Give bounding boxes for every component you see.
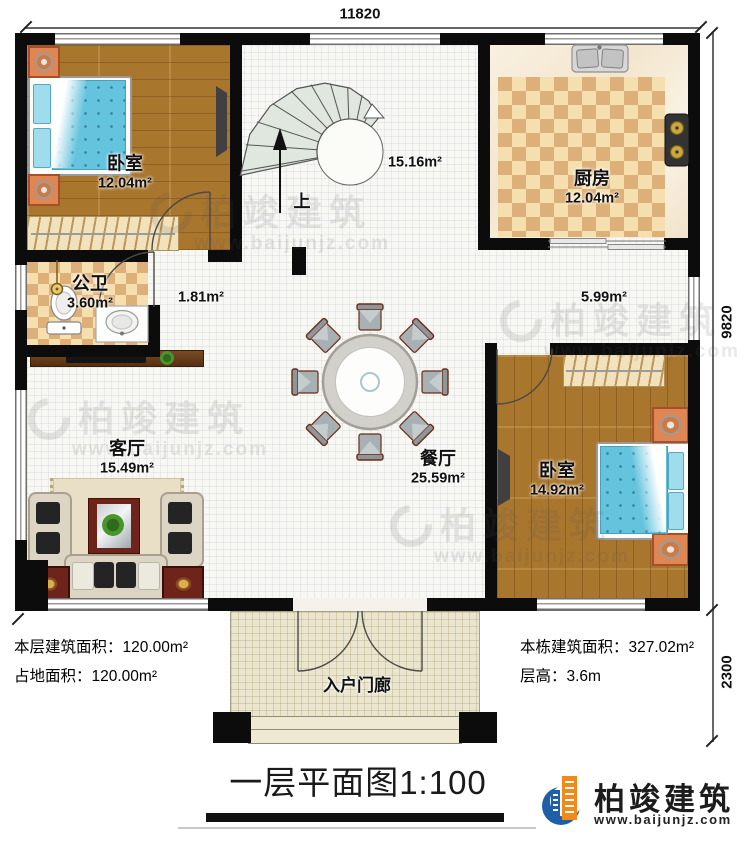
window — [48, 598, 208, 611]
room-label-bathroom: 公卫 3.60m² — [67, 274, 113, 313]
dimension-height-porch: 2300 — [719, 651, 736, 692]
porch-step — [248, 729, 462, 744]
plant-icon — [160, 351, 174, 365]
pillow — [668, 492, 684, 530]
title-underline-thin — [178, 827, 536, 829]
watermark: 柏竣建筑 www.baijunjz.com — [390, 505, 630, 567]
room-label-bedroom2: 卧室 14.92m² — [530, 461, 584, 500]
sofa-cushion — [36, 532, 60, 554]
watermark-logo-icon — [491, 291, 550, 350]
area-label-stair-hall: 15.16m² — [388, 154, 442, 171]
floor-plan-canvas: 卧室 12.04m² 15.16m² 上 厨房 12.04m² 公卫 3.60m… — [0, 0, 750, 842]
watermark-logo-icon — [381, 496, 440, 555]
sofa-cushion — [72, 562, 94, 590]
kitchen-tile — [498, 77, 665, 237]
pillow — [33, 128, 51, 168]
window — [15, 390, 27, 540]
title-underline — [206, 813, 504, 822]
stairs-up-label: 上 — [294, 192, 311, 212]
nightstand — [28, 46, 60, 78]
sofa-cushion — [168, 502, 192, 524]
wall — [15, 345, 160, 357]
brand-logo-icon — [542, 770, 588, 828]
area-notes-right: 本栋建筑面积：327.02m² 层高：3.6m — [520, 634, 694, 691]
watermark-logo-icon — [19, 389, 78, 448]
window — [55, 33, 180, 45]
dimension-line-top — [25, 27, 701, 29]
watermark: 柏竣建筑 www.baijunjz.com — [500, 300, 740, 362]
sofa-cushion — [116, 562, 136, 588]
watermark: 柏竣建筑 www.baijunjz.com — [150, 192, 390, 254]
bed-sheet — [52, 80, 86, 168]
pillow — [33, 84, 51, 124]
note-land-area: 占地面积：120.00m² — [14, 663, 188, 692]
room-label-bedroom1: 卧室 12.04m² — [98, 154, 152, 193]
side-table — [162, 566, 204, 602]
window — [310, 33, 440, 45]
wall — [664, 238, 700, 250]
area-label-corridor-small: 1.81m² — [178, 289, 224, 306]
sofa-cushion — [138, 562, 160, 590]
note-floor-height: 层高：3.6m — [520, 663, 694, 692]
brand-url: www.baijunjz.com — [594, 812, 732, 827]
dimension-tick — [12, 613, 25, 626]
sofa-cushion — [168, 532, 192, 554]
wall — [485, 343, 497, 608]
entry-door-opening — [293, 598, 427, 611]
area-notes-left: 本层建筑面积：120.00m² 占地面积：120.00m² — [14, 634, 188, 691]
porch-floor — [230, 611, 480, 718]
sofa-cushion — [94, 562, 114, 588]
porch-column — [213, 712, 251, 743]
dimension-width: 11820 — [336, 6, 385, 23]
area-label-corridor-right: 5.99m² — [581, 289, 627, 306]
window — [545, 33, 663, 45]
bed-sheet — [630, 446, 666, 532]
note-floor-area: 本层建筑面积：120.00m² — [14, 634, 188, 663]
plant-icon — [102, 514, 124, 536]
wall — [478, 238, 550, 250]
dimension-line-right-porch — [712, 611, 714, 742]
room-label-dining: 餐厅 25.59m² — [411, 449, 465, 488]
room-label-kitchen: 厨房 12.04m² — [565, 169, 619, 208]
page-title: 一层平面图1:100 — [229, 756, 487, 804]
nightstand — [652, 533, 689, 566]
nightstand — [28, 174, 60, 206]
pillow — [668, 452, 684, 490]
wall — [478, 33, 490, 250]
wall — [15, 560, 48, 611]
room-label-porch: 入户门廊 — [323, 676, 391, 696]
room-label-living: 客厅 15.49m² — [100, 439, 154, 478]
window — [15, 265, 27, 310]
window — [537, 598, 645, 611]
wall — [15, 250, 148, 262]
sofa-cushion — [36, 502, 60, 524]
note-total-area: 本栋建筑面积：327.02m² — [520, 634, 694, 663]
porch-column — [459, 712, 497, 743]
nightstand — [652, 407, 689, 443]
